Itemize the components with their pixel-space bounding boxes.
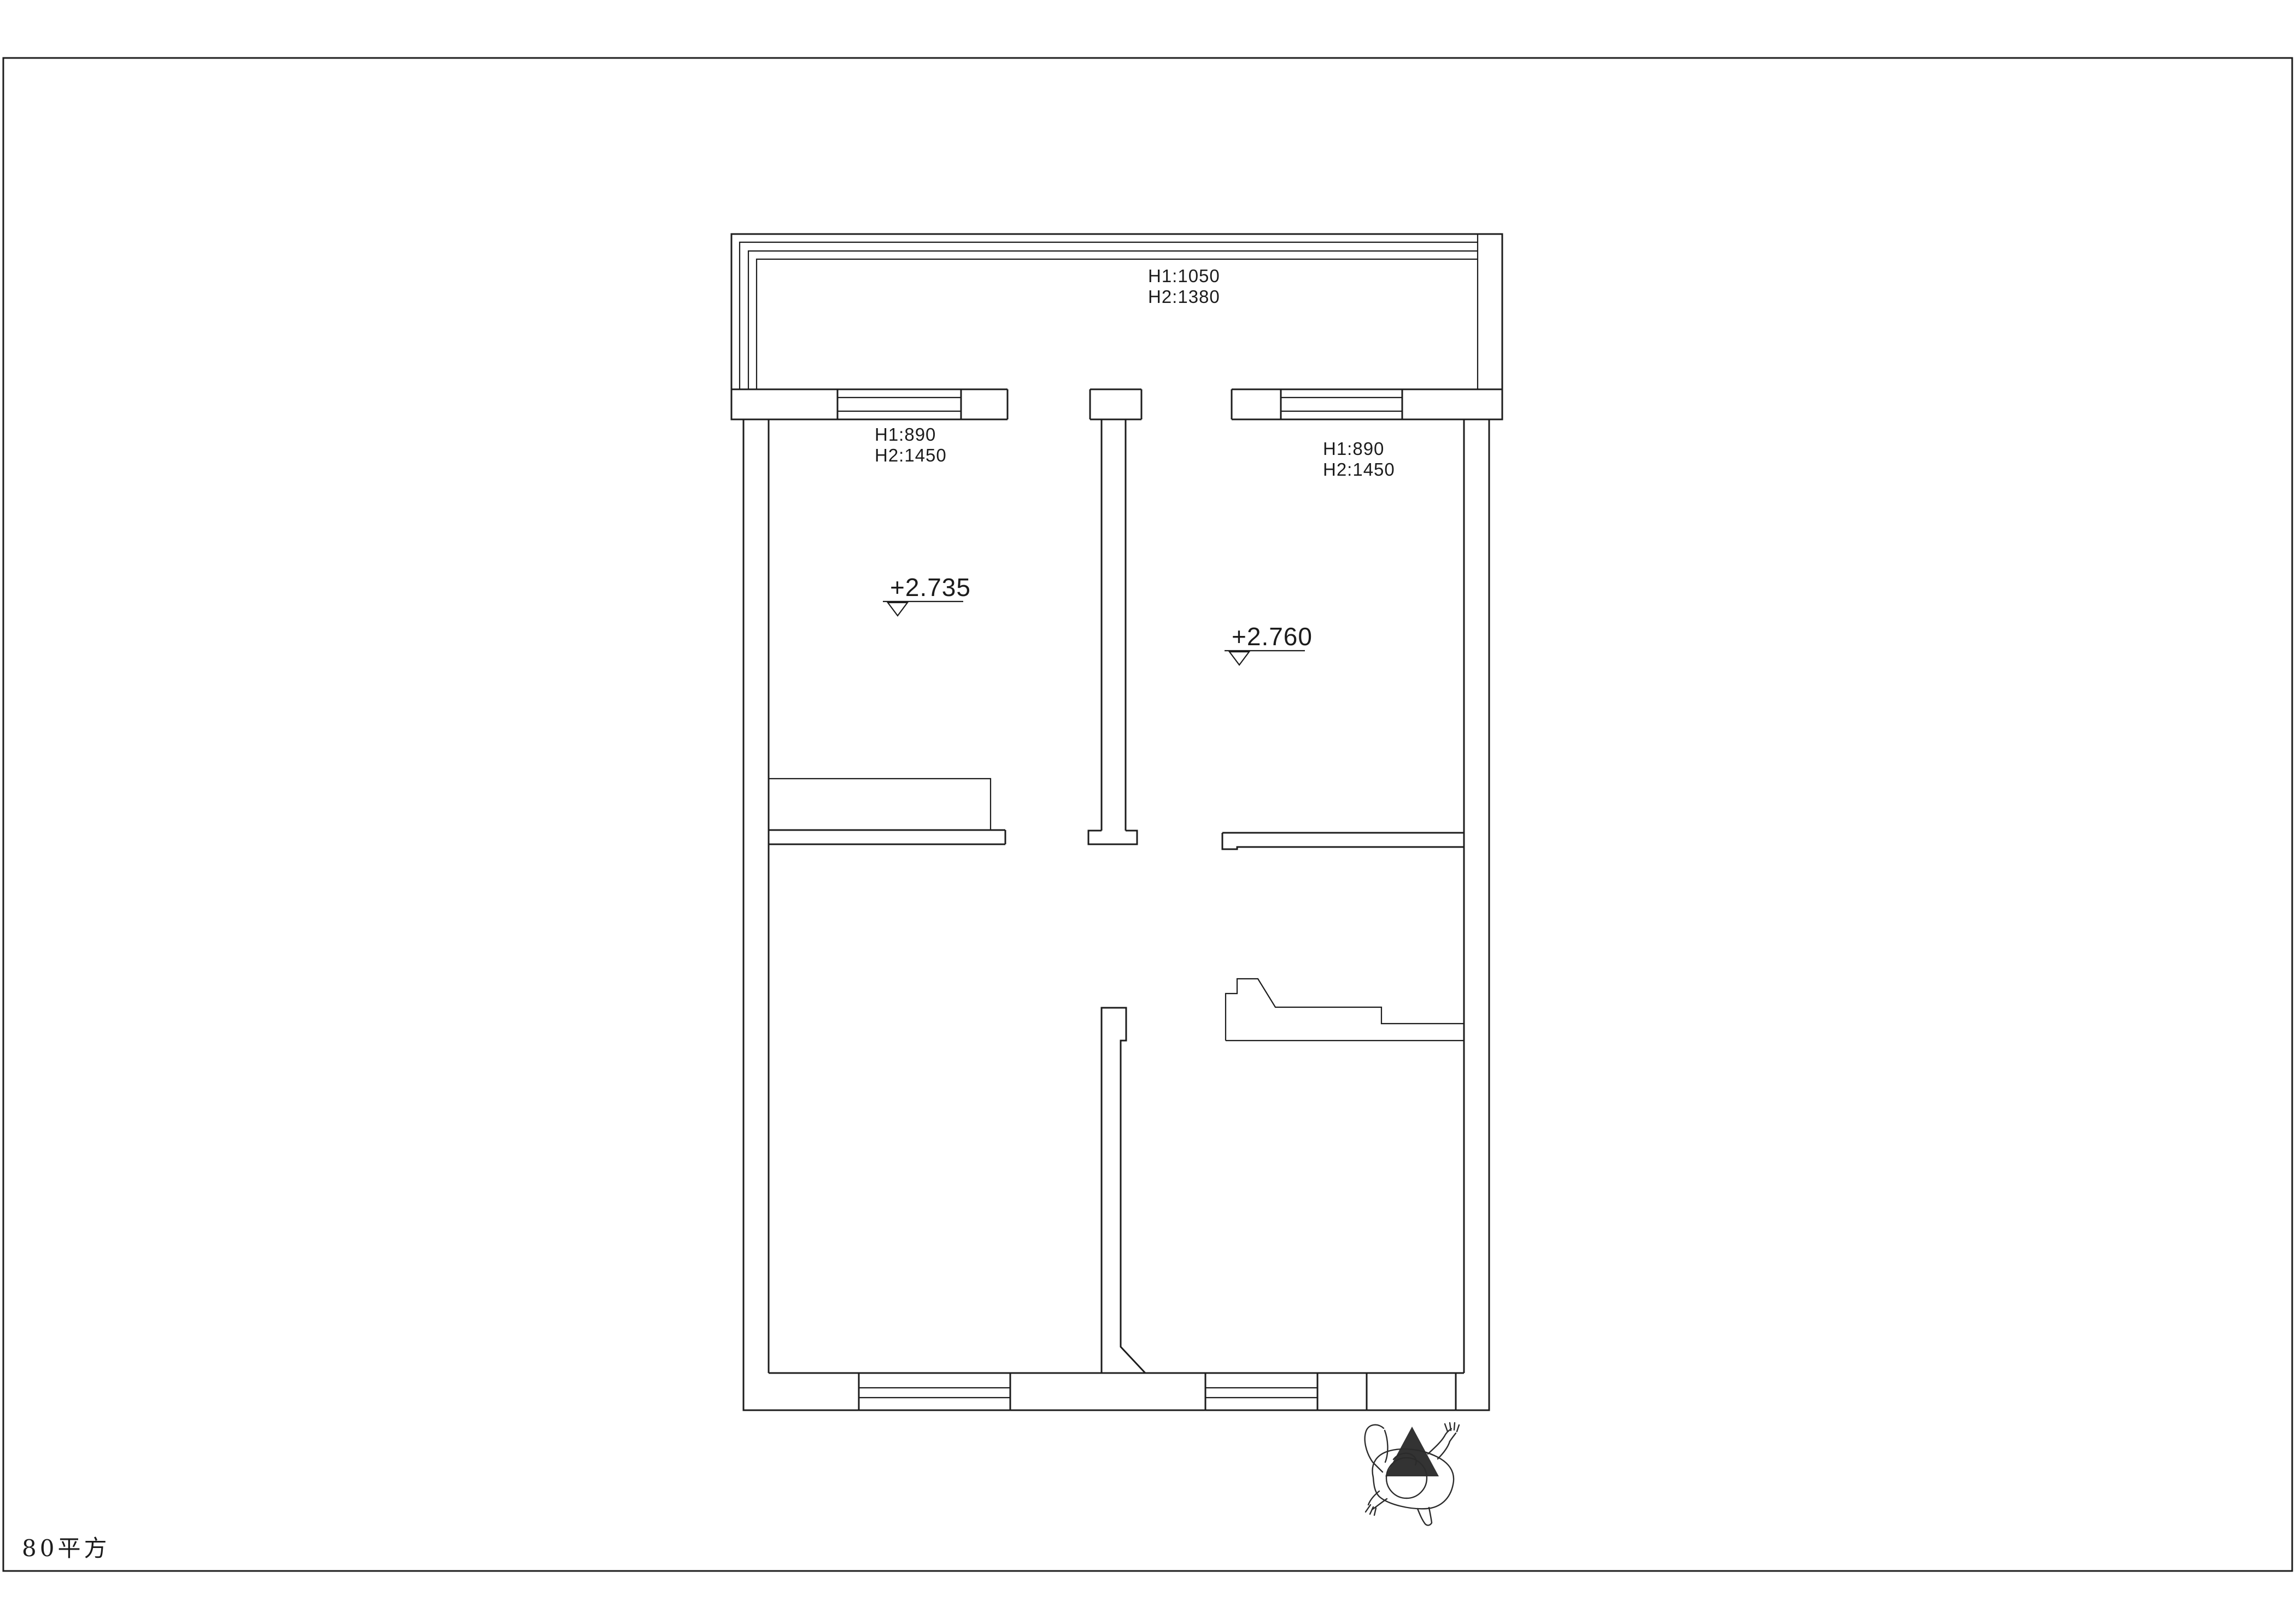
left-room-bottom-wall: [769, 830, 1005, 844]
top-windows-glass-lines: [837, 398, 1402, 411]
lower-central-wall: [1102, 1008, 1145, 1373]
balcony-window-h1: H1:1050: [1148, 266, 1220, 286]
counter-fixture-outline: [1226, 979, 1464, 1041]
right-window-h1: H1:890: [1323, 439, 1384, 459]
level-value-right: +2.760: [1232, 622, 1313, 651]
balcony-window-label: H1:1050 H2:1380: [1148, 266, 1220, 307]
balcony-glazing-lines: [740, 234, 1478, 389]
exterior-wall-outline: [731, 234, 1502, 1410]
central-partition-wall: [1088, 419, 1137, 844]
balcony-window-h2: H2:1380: [1148, 287, 1220, 307]
area-label: 80平方: [22, 1535, 110, 1562]
level-marker-left: +2.735: [883, 573, 971, 616]
left-window-h1: H1:890: [875, 424, 936, 445]
bottom-windows-glass-lines: [859, 1388, 1317, 1398]
left-window-h2: H2:1450: [875, 445, 947, 465]
level-triangle-icon: [1229, 652, 1249, 665]
right-window-label: H1:890 H2:1450: [1323, 439, 1395, 480]
left-window-label: H1:890 H2:1450: [875, 424, 947, 465]
right-room-bottom-wall: [1222, 833, 1464, 849]
right-window-h2: H2:1450: [1323, 459, 1395, 480]
bottom-openings-jambs: [859, 1373, 1456, 1410]
floor-plan-drawing: +2.735 +2.760 H1:1050 H2:1380 H1:890 H2:…: [0, 0, 2296, 1624]
closet-block: [769, 779, 991, 830]
floor-plan-page: +2.735 +2.760 H1:1050 H2:1380 H1:890 H2:…: [0, 0, 2296, 1624]
level-marker-right: +2.760: [1225, 622, 1313, 665]
balcony-partition-wall: [731, 389, 1502, 419]
side-wall-inner-lines: [769, 419, 1464, 1373]
level-value-left: +2.735: [890, 573, 971, 601]
level-triangle-icon: [888, 603, 907, 616]
